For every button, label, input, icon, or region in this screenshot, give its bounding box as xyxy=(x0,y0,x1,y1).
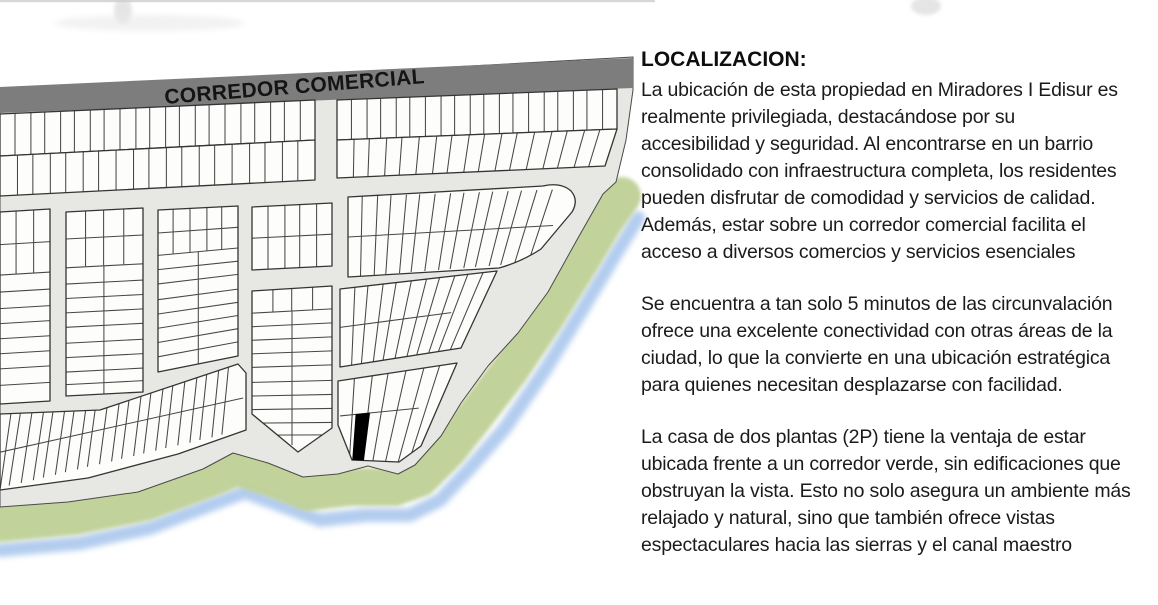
lot-block xyxy=(66,208,143,396)
smudge-artifact xyxy=(911,0,941,15)
location-panel: LOCALIZACION: La ubicación de esta propi… xyxy=(641,46,1157,584)
paragraph-2: Se encuentra a tan solo 5 minutos de las… xyxy=(641,291,1157,399)
paragraph-3: La casa de dos plantas (2P) tiene la ven… xyxy=(641,424,1157,559)
panel-title: LOCALIZACION: xyxy=(641,46,1157,73)
real-estate-location-page: CORREDOR COMERCIAL LOCALIZACION: La ubic… xyxy=(0,0,1158,605)
scan-line-artifact xyxy=(0,0,655,2)
smudge-artifact xyxy=(55,15,245,31)
paragraph-1: La ubicación de esta propiedad en Mirado… xyxy=(641,77,1157,266)
